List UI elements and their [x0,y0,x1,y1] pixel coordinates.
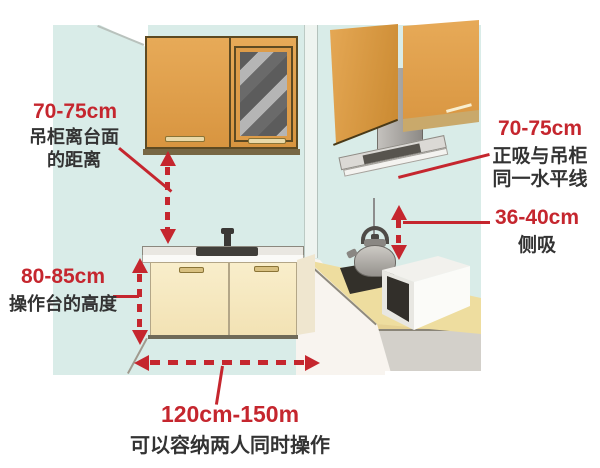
front-hood-value: 70-75cm [485,117,595,141]
glass-door-pane [240,52,287,136]
walkway-label: 可以容纳两人同时操作 [110,429,350,458]
cabinet-door-divider [229,38,231,147]
arrow-right-walkway [305,355,320,371]
front-hood-label-2: 同一水平线 [483,164,597,191]
arrow-down-counter-height [132,330,148,345]
arrow-up-counter-height [132,258,148,273]
tick-line-side-hood [403,221,490,224]
base-cabinet-door-divider [228,263,230,335]
cabinet-gap-value: 70-75cm [20,100,130,124]
base-cabinet-handle-right [254,266,279,272]
wall-corner-pillar [304,25,318,258]
arrow-down-cabinet-gap [160,229,176,244]
side-hood-value: 36-40cm [482,206,592,230]
cabinet-handle-left [165,136,205,142]
arrow-down-side-hood [391,245,407,260]
microwave [378,248,474,332]
sink [196,247,258,256]
base-cabinet [150,262,297,336]
base-cabinet-side [297,254,316,336]
arrow-up-side-hood [391,205,407,220]
base-cabinet-plinth-shadow [148,335,298,339]
walkway-value: 120cm-150m [150,401,310,428]
dim-arrow-side-hood [396,220,401,246]
counter-height-value: 80-85cm [8,265,118,289]
dim-arrow-walkway [150,360,306,365]
kitchen-dimensions-infographic: 70-75cm 吊柜离台面 的距离 80-85cm 操作台的高度 70-75cm… [0,0,600,468]
cabinet-handle-right [248,138,286,144]
floor-patch [385,371,485,377]
counter-height-label: 操作台的高度 [0,290,126,316]
cabinet-gap-label-2: 的距离 [14,146,134,172]
arrow-left-walkway [134,355,149,371]
dim-arrow-cabinet-gap [165,167,170,229]
base-cabinet-handle-left [179,267,204,273]
side-hood-label: 侧吸 [482,230,592,257]
arrow-up-cabinet-gap [160,151,176,166]
dim-arrow-counter-height [137,274,142,330]
